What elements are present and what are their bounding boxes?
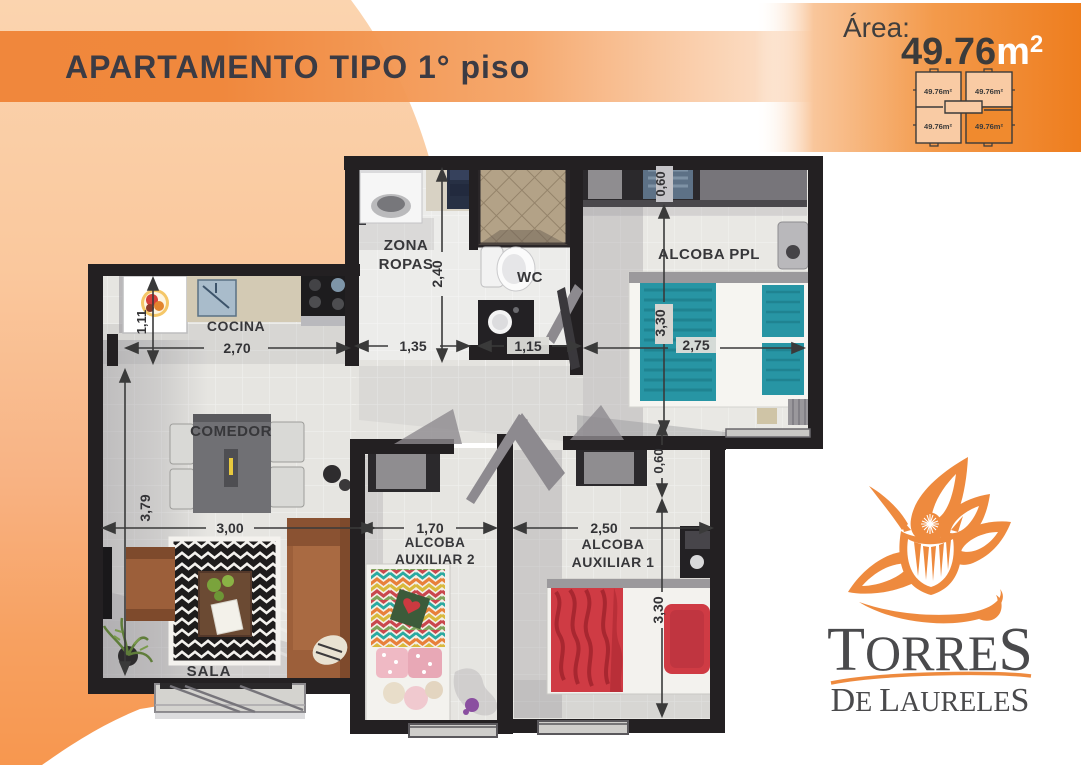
svg-text:0,60: 0,60 xyxy=(653,171,668,196)
svg-text:DE LAURELES: DE LAURELES xyxy=(831,682,1030,719)
svg-text:Área:: Área: xyxy=(843,12,910,43)
svg-text:3,30: 3,30 xyxy=(652,309,668,336)
svg-text:3,00: 3,00 xyxy=(216,520,243,536)
svg-text:49.76m²: 49.76m² xyxy=(924,122,952,131)
svg-text:49.76m²: 49.76m² xyxy=(975,87,1003,96)
svg-text:49.76m²: 49.76m² xyxy=(975,122,1003,131)
svg-text:1,70: 1,70 xyxy=(416,520,443,536)
svg-text:SALA: SALA xyxy=(187,663,232,680)
svg-text:WC: WC xyxy=(517,269,543,286)
svg-text:49.76m2: 49.76m2 xyxy=(901,31,1043,73)
svg-text:1,35: 1,35 xyxy=(399,338,426,354)
svg-text:0,60: 0,60 xyxy=(651,448,666,473)
svg-text:COMEDOR: COMEDOR xyxy=(190,423,272,440)
svg-text:1,11: 1,11 xyxy=(134,310,149,335)
svg-text:ZONA: ZONA xyxy=(384,237,429,254)
svg-text:AUXILIAR 1: AUXILIAR 1 xyxy=(572,554,655,570)
svg-text:49.76m²: 49.76m² xyxy=(924,87,952,96)
svg-text:3,30: 3,30 xyxy=(650,596,666,623)
svg-text:1,15: 1,15 xyxy=(514,338,541,354)
svg-text:AUXILIAR 2: AUXILIAR 2 xyxy=(395,552,475,567)
svg-text:APARTAMENTO TIPO 1° piso: APARTAMENTO TIPO 1° piso xyxy=(65,49,530,85)
svg-text:ALCOBA: ALCOBA xyxy=(582,536,645,552)
svg-text:2,75: 2,75 xyxy=(682,337,709,353)
svg-text:3,79: 3,79 xyxy=(137,494,153,521)
svg-text:2,70: 2,70 xyxy=(223,340,250,356)
svg-text:ALCOBA: ALCOBA xyxy=(405,535,466,550)
svg-text:COCINA: COCINA xyxy=(207,318,265,334)
svg-text:2,50: 2,50 xyxy=(590,520,617,536)
svg-text:ROPAS: ROPAS xyxy=(379,256,434,273)
svg-text:ALCOBA PPL: ALCOBA PPL xyxy=(658,246,760,263)
